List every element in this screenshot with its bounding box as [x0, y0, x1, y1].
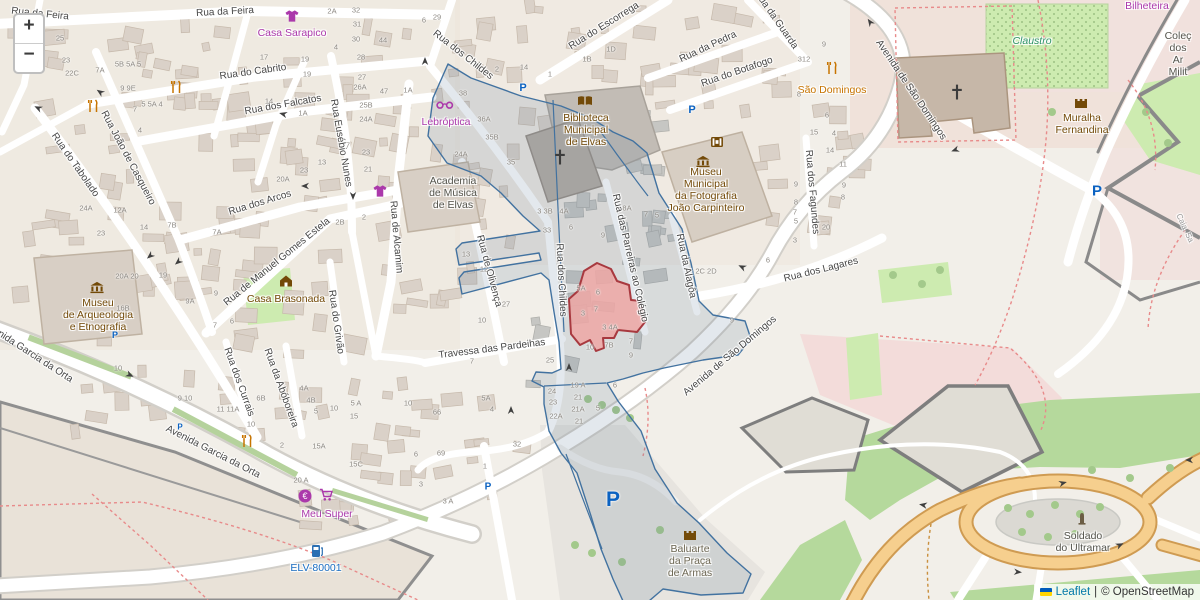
attribution-separator: | — [1094, 586, 1097, 598]
zoom-control: + − — [13, 13, 45, 74]
osm-link[interactable]: © OpenStreetMap — [1101, 586, 1194, 598]
map-canvas[interactable]: Rua da FeiraRua da FeiraRua do CabritoRu… — [0, 0, 1200, 600]
academia-building — [398, 162, 480, 232]
zoom-in-button[interactable]: + — [15, 15, 43, 44]
ukraine-flag-icon — [1040, 588, 1052, 596]
map-base-layer — [0, 0, 1200, 600]
arqueologia-building — [34, 250, 142, 344]
zoom-out-button[interactable]: − — [15, 44, 43, 72]
leaflet-link[interactable]: Leaflet — [1056, 586, 1091, 598]
attribution-bar: Leaflet | © OpenStreetMap — [1034, 584, 1200, 600]
